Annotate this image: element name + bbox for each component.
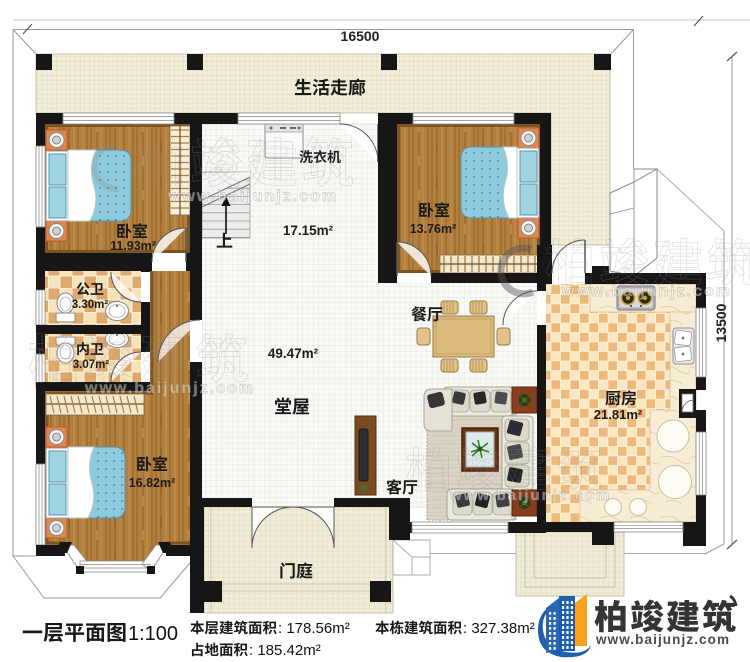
svg-text:17.15m²: 17.15m² [283,223,334,238]
svg-text:16500: 16500 [341,28,380,44]
svg-text:: 178.56m²: : 178.56m² [278,620,350,637]
svg-text:13.76m²: 13.76m² [410,222,457,236]
svg-text:21.81m²: 21.81m² [594,407,643,422]
svg-text:www.baijunjz.com: www.baijunjz.com [595,632,730,647]
svg-text:16.82m²: 16.82m² [129,476,176,490]
svg-text:www.baijunjz.com: www.baijunjz.com [449,487,611,504]
svg-text:49.47m²: 49.47m² [268,346,319,361]
svg-text:11.93m²: 11.93m² [110,239,156,253]
svg-text:www.baijunjz.com: www.baijunjz.com [167,188,338,205]
svg-text:: 327.38m²: : 327.38m² [463,620,535,637]
svg-text:www.baijunjz.com: www.baijunjz.com [561,283,732,300]
svg-text:: 185.42m²: : 185.42m² [249,642,321,659]
svg-text:3.30m²: 3.30m² [72,299,109,311]
svg-text:13500: 13500 [713,303,729,342]
svg-text:3.07m²: 3.07m² [73,359,110,371]
svg-text:1:100: 1:100 [128,623,178,645]
svg-text:www.baijunjz.com: www.baijunjz.com [84,380,255,397]
